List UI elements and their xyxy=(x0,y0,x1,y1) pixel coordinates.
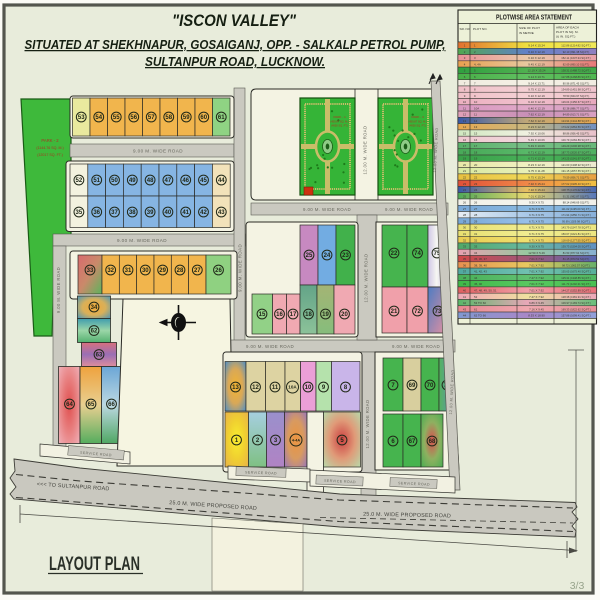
svg-text:65: 65 xyxy=(88,402,95,408)
svg-text:6.40 X 12.19: 6.40 X 12.19 xyxy=(528,106,545,110)
svg-text:8.23 X 12.19: 8.23 X 12.19 xyxy=(528,163,545,167)
svg-text:10: 10 xyxy=(463,100,467,104)
svg-text:7.62 X 12.19: 7.62 X 12.19 xyxy=(528,119,545,123)
svg-text:41: 41 xyxy=(182,210,189,216)
svg-text:66: 66 xyxy=(108,402,115,408)
svg-text:40: 40 xyxy=(463,289,467,293)
svg-text:6.71 X 9.75: 6.71 X 9.75 xyxy=(529,238,544,242)
svg-text:9.00 M. WIDE ROAD: 9.00 M. WIDE ROAD xyxy=(385,207,433,212)
svg-text:31: 31 xyxy=(125,268,132,274)
svg-text:21: 21 xyxy=(463,169,467,173)
svg-text:55: 55 xyxy=(113,115,120,121)
svg-text:44: 44 xyxy=(474,276,478,280)
svg-text:9.30 X 9.75: 9.30 X 9.75 xyxy=(529,201,544,205)
svg-text:20: 20 xyxy=(474,163,478,167)
svg-text:173.22 (1864.56 SQ.FT.): 173.22 (1864.56 SQ.FT.) xyxy=(561,125,591,129)
svg-text:6.10 X 12.19: 6.10 X 12.19 xyxy=(528,94,545,98)
svg-text:9.00 M. WIDE ROAD: 9.00 M. WIDE ROAD xyxy=(392,344,440,349)
svg-text:47: 47 xyxy=(165,178,172,184)
svg-text:(12017 SQ. FT.): (12017 SQ. FT.) xyxy=(37,153,63,157)
svg-text:35: 35 xyxy=(463,257,467,261)
svg-text:43: 43 xyxy=(218,210,225,216)
svg-text:18: 18 xyxy=(305,312,312,318)
svg-text:111.70 (1202.31 SQ.FT.): 111.70 (1202.31 SQ.FT.) xyxy=(561,282,590,286)
svg-text:25: 25 xyxy=(306,253,313,259)
svg-text:117.88 (1268.89 SQ.FT.): 117.88 (1268.89 SQ.FT.) xyxy=(561,75,590,79)
svg-text:88.86 (956.45 SQ.FT.): 88.86 (956.45 SQ.FT.) xyxy=(563,132,590,136)
svg-text:PARK - 2: PARK - 2 xyxy=(41,138,59,143)
svg-text:LAYOUT PLAN: LAYOUT PLAN xyxy=(49,553,140,575)
svg-text:32: 32 xyxy=(107,268,114,274)
svg-text:12: 12 xyxy=(463,113,467,117)
svg-text:30: 30 xyxy=(474,226,478,230)
svg-text:(4950 SQ. FT.): (4950 SQ. FT.) xyxy=(331,124,348,128)
svg-text:(& IN. SQ.FT.): (& IN. SQ.FT.) xyxy=(556,35,575,39)
svg-text:19: 19 xyxy=(322,312,329,318)
svg-text:9.75 X 11.28: 9.75 X 11.28 xyxy=(528,169,545,173)
svg-text:57: 57 xyxy=(148,115,155,121)
svg-text:SITUATED AT SHEKHNAPUR, GOSAIG: SITUATED AT SHEKHNAPUR, GOSAIGANJ, OPP. … xyxy=(25,38,446,52)
svg-text:52: 52 xyxy=(474,295,478,299)
svg-text:26: 26 xyxy=(215,268,222,274)
svg-text:67: 67 xyxy=(409,439,416,445)
svg-text:34: 34 xyxy=(91,305,98,311)
svg-text:40: 40 xyxy=(165,210,172,216)
svg-text:9.14 X 15.24: 9.14 X 15.24 xyxy=(528,44,545,48)
svg-text:7.16 X 9.45: 7.16 X 9.45 xyxy=(529,307,544,311)
svg-text:13: 13 xyxy=(232,385,239,391)
svg-text:9.14 X 13.71: 9.14 X 13.71 xyxy=(528,81,545,85)
svg-text:50: 50 xyxy=(111,178,118,184)
svg-text:17: 17 xyxy=(474,144,478,148)
svg-text:47, 48, 49, 50, 51: 47, 48, 49, 50, 51 xyxy=(474,289,497,293)
svg-text:12.50 X 5.49: 12.50 X 5.49 xyxy=(528,251,545,255)
svg-text:11: 11 xyxy=(463,106,466,110)
svg-text:19: 19 xyxy=(474,157,478,161)
svg-text:10: 10 xyxy=(305,385,312,391)
svg-text:155.65 (1675.40 SQ.FT.): 155.65 (1675.40 SQ.FT.) xyxy=(561,270,591,274)
svg-text:15: 15 xyxy=(463,132,467,136)
svg-text:41, 42, 43: 41, 42, 43 xyxy=(474,270,487,274)
svg-text:9.00 M. WIDE ROAD: 9.00 M. WIDE ROAD xyxy=(56,267,61,313)
svg-text:18: 18 xyxy=(463,150,467,154)
svg-text:80.96 (871.45 SQ.FT.): 80.96 (871.45 SQ.FT.) xyxy=(563,81,590,85)
svg-text:30: 30 xyxy=(463,226,467,230)
svg-text:69: 69 xyxy=(409,383,416,389)
svg-text:22: 22 xyxy=(474,175,478,179)
svg-text:37: 37 xyxy=(111,210,118,216)
svg-text:SULTANPUR ROAD, LUCKNOW.: SULTANPUR ROAD, LUCKNOW. xyxy=(145,55,325,69)
svg-text:13: 13 xyxy=(463,119,467,123)
svg-text:9.00 M. WIDE ROAD: 9.00 M. WIDE ROAD xyxy=(238,244,243,292)
svg-text:20: 20 xyxy=(341,312,348,318)
svg-text:44: 44 xyxy=(463,314,467,318)
svg-text:125.31 (1348.85 SQ.FT.): 125.31 (1348.85 SQ.FT.) xyxy=(561,276,591,280)
svg-text:34: 34 xyxy=(463,251,467,255)
svg-text:PARK - 3: PARK - 3 xyxy=(411,115,424,119)
svg-text:26: 26 xyxy=(474,201,478,205)
svg-text:21: 21 xyxy=(474,169,478,173)
svg-text:74: 74 xyxy=(414,251,421,257)
svg-text:169.33 (1822.62 SQ.FT.): 169.33 (1822.62 SQ.FT.) xyxy=(561,307,591,311)
svg-text:6.10 X 12.19: 6.10 X 12.19 xyxy=(528,50,545,54)
svg-text:6.71 X 9.75: 6.71 X 9.75 xyxy=(529,219,544,223)
svg-text:33: 33 xyxy=(474,245,478,249)
svg-text:12.00 M. WIDE ROAD: 12.00 M. WIDE ROAD xyxy=(364,254,369,303)
svg-text:29: 29 xyxy=(463,219,467,223)
svg-text:24: 24 xyxy=(463,188,467,192)
svg-text:23: 23 xyxy=(463,182,467,186)
svg-text:43: 43 xyxy=(463,307,467,311)
svg-text:6.71 X 12.19: 6.71 X 12.19 xyxy=(528,150,545,154)
svg-text:84.89 (913.71 SQ.FT.): 84.89 (913.71 SQ.FT.) xyxy=(563,113,590,117)
svg-text:27: 27 xyxy=(194,268,201,274)
svg-text:9.00 M. WIDE ROAD: 9.00 M. WIDE ROAD xyxy=(246,344,294,349)
svg-text:32: 32 xyxy=(474,238,478,242)
svg-text:7.92 X 10.06: 7.92 X 10.06 xyxy=(528,132,545,136)
svg-text:6.71 X 9.75: 6.71 X 9.75 xyxy=(529,232,544,236)
svg-text:16: 16 xyxy=(474,138,478,142)
svg-text:143.79 (1547.78 SQ.FT.): 143.79 (1547.78 SQ.FT.) xyxy=(561,226,591,230)
svg-text:35, 36, 37: 35, 36, 37 xyxy=(474,257,487,261)
svg-text:AREA OF EACH: AREA OF EACH xyxy=(556,26,579,30)
svg-text:48: 48 xyxy=(147,178,154,184)
svg-text:7.32 X 15.24: 7.32 X 15.24 xyxy=(528,182,545,186)
svg-text:12.19 X 15.24: 12.19 X 15.24 xyxy=(527,69,545,73)
svg-text:42: 42 xyxy=(463,301,467,305)
svg-text:IN METRE: IN METRE xyxy=(519,31,534,35)
svg-text:39: 39 xyxy=(463,282,467,286)
svg-text:152.11 (1637.34 SQ.FT.): 152.11 (1637.34 SQ.FT.) xyxy=(561,56,590,60)
svg-text:4, 4A: 4, 4A xyxy=(474,62,481,66)
svg-text:38, 39, 40: 38, 39, 40 xyxy=(474,263,487,267)
svg-text:23: 23 xyxy=(342,253,349,259)
svg-text:60: 60 xyxy=(200,115,207,121)
svg-text:98.72 (1062.57 SQ.FT.): 98.72 (1062.57 SQ.FT.) xyxy=(562,263,590,267)
svg-text:10: 10 xyxy=(474,100,478,104)
svg-text:6.10 X 12.19: 6.10 X 12.19 xyxy=(528,100,545,104)
svg-text:45: 45 xyxy=(200,178,207,184)
svg-text:46: 46 xyxy=(182,178,189,184)
svg-text:10A: 10A xyxy=(288,385,297,390)
svg-text:62: 62 xyxy=(91,329,98,335)
svg-text:34: 34 xyxy=(474,251,478,255)
svg-text:78.50 (844.97 SQ.FT.): 78.50 (844.97 SQ.FT.) xyxy=(563,94,590,98)
svg-text:23: 23 xyxy=(474,182,478,186)
svg-text:31: 31 xyxy=(463,232,467,236)
svg-text:36: 36 xyxy=(93,210,100,216)
svg-text:24: 24 xyxy=(324,253,331,259)
svg-text:9.00 M. WIDE ROAD: 9.00 M. WIDE ROAD xyxy=(133,149,183,154)
svg-text:70: 70 xyxy=(427,383,434,389)
svg-text:7.47 X 7.92: 7.47 X 7.92 xyxy=(529,276,544,280)
svg-text:20: 20 xyxy=(463,163,467,167)
svg-text:72: 72 xyxy=(414,309,421,315)
svg-text:108.75 (1170.62 SQ.FT.): 108.75 (1170.62 SQ.FT.) xyxy=(561,188,590,192)
svg-text:134.89 (1451.98 SQ.FT.): 134.89 (1451.98 SQ.FT.) xyxy=(561,88,591,92)
svg-text:149.29 (1606.98 SQ.FT.): 149.29 (1606.98 SQ.FT.) xyxy=(561,144,591,148)
svg-text:SIZE OF PLOT: SIZE OF PLOT xyxy=(519,26,540,30)
svg-text:64: 64 xyxy=(66,402,73,408)
svg-text:28: 28 xyxy=(474,213,478,217)
svg-text:19: 19 xyxy=(463,157,467,161)
svg-text:81.15 (873.52 SQ.FT.): 81.15 (873.52 SQ.FT.) xyxy=(563,257,590,261)
svg-text:44: 44 xyxy=(218,178,225,184)
svg-text:53 TO 60: 53 TO 60 xyxy=(474,301,486,305)
svg-text:7.01 X 7.92: 7.01 X 7.92 xyxy=(529,263,544,267)
svg-text:15: 15 xyxy=(474,132,478,136)
svg-text:7.47 X 7.92: 7.47 X 7.92 xyxy=(529,295,544,299)
svg-text:39: 39 xyxy=(147,210,154,216)
svg-text:73: 73 xyxy=(435,309,442,315)
svg-text:17: 17 xyxy=(463,144,467,148)
svg-text:95.69 (1029.98 SQ.FT.): 95.69 (1029.98 SQ.FT.) xyxy=(562,219,590,223)
svg-text:13: 13 xyxy=(474,125,478,129)
svg-text:88.14 (948.69 SQ.FT.): 88.14 (948.69 SQ.FT.) xyxy=(563,201,590,205)
svg-text:27: 27 xyxy=(474,207,478,211)
svg-text:9.45 X 12.19: 9.45 X 12.19 xyxy=(528,62,545,66)
svg-text:171.94 (1850.71 SQ.FT.): 171.94 (1850.71 SQ.FT.) xyxy=(561,213,591,217)
svg-text:30: 30 xyxy=(142,268,149,274)
svg-text:11: 11 xyxy=(474,113,477,117)
svg-text:6.10 X 12.19: 6.10 X 12.19 xyxy=(528,56,545,60)
svg-text:7.62 X 12.19: 7.62 X 12.19 xyxy=(528,113,545,117)
svg-text:128.38 (1381.91 SQ.FT.): 128.38 (1381.91 SQ.FT.) xyxy=(561,295,591,299)
svg-text:"ISCON VALLEY": "ISCON VALLEY" xyxy=(172,11,297,30)
svg-text:31: 31 xyxy=(474,232,478,236)
svg-text:9.75 X 15.24: 9.75 X 15.24 xyxy=(528,175,545,179)
svg-text:126.04 (1356.67 SQ.FT.): 126.04 (1356.67 SQ.FT.) xyxy=(561,100,591,104)
svg-text:22: 22 xyxy=(463,175,467,179)
svg-text:3/3: 3/3 xyxy=(570,580,585,592)
svg-text:29: 29 xyxy=(159,268,166,274)
svg-text:17: 17 xyxy=(290,312,297,318)
svg-text:6.71 X 12.19: 6.71 X 12.19 xyxy=(528,157,545,161)
svg-text:49: 49 xyxy=(129,178,136,184)
svg-text:10A: 10A xyxy=(474,106,479,110)
svg-text:(1144.76 SQ. M.): (1144.76 SQ. M.) xyxy=(36,146,63,150)
svg-text:121.60 (1308.92 SQ.FT.): 121.60 (1308.92 SQ.FT.) xyxy=(561,163,591,167)
svg-text:18: 18 xyxy=(474,150,478,154)
svg-text:61: 61 xyxy=(474,307,478,311)
svg-text:9.00 M. WIDE ROAD: 9.00 M. WIDE ROAD xyxy=(117,238,167,243)
svg-text:12: 12 xyxy=(474,119,478,123)
svg-text:7.01 X 15.24: 7.01 X 15.24 xyxy=(528,194,545,198)
svg-text:59: 59 xyxy=(183,115,190,121)
svg-text:9.30 X 9.75: 9.30 X 9.75 xyxy=(529,245,544,249)
svg-text:(4950 SQ. FT.): (4950 SQ. FT.) xyxy=(409,124,426,128)
svg-text:32: 32 xyxy=(463,238,467,242)
svg-text:100.79 (1084.89 SQ.FT.): 100.79 (1084.89 SQ.FT.) xyxy=(561,138,591,142)
svg-text:6.71 X 9.75: 6.71 X 9.75 xyxy=(529,213,544,217)
svg-text:7.32 X 15.24: 7.32 X 15.24 xyxy=(528,188,545,192)
svg-text:92.10 (991.38 SQ.FT.): 92.10 (991.38 SQ.FT.) xyxy=(563,50,590,54)
svg-text:25: 25 xyxy=(463,194,467,198)
svg-text:82.69 (890.10 SQ.FT.): 82.69 (890.10 SQ.FT.) xyxy=(563,62,590,66)
svg-text:187.73 (2020.67 SQ.FT.): 187.73 (2020.67 SQ.FT.) xyxy=(561,150,591,154)
svg-text:157.88 (1699.41 SQ.FT.): 157.88 (1699.41 SQ.FT.) xyxy=(561,314,591,318)
svg-text:45, 46: 45, 46 xyxy=(474,282,482,286)
svg-text:144.27 (1552.89 SQ.FT.): 144.27 (1552.89 SQ.FT.) xyxy=(561,289,591,293)
svg-text:138.31 (1488.72 SQ.FT.): 138.31 (1488.72 SQ.FT.) xyxy=(561,69,591,73)
svg-text:58: 58 xyxy=(165,115,172,121)
svg-text:53: 53 xyxy=(78,115,85,121)
svg-text:33: 33 xyxy=(87,268,94,274)
svg-text:139.73 (1504.05 SQ.FT.): 139.73 (1504.05 SQ.FT.) xyxy=(561,245,591,249)
svg-text:PARK - 1: PARK - 1 xyxy=(333,115,346,119)
svg-text:177.02 (1905.40 SQ.FT.): 177.02 (1905.40 SQ.FT.) xyxy=(561,182,591,186)
svg-text:PLOTWISE AREA STATEMENT: PLOTWISE AREA STATEMENT xyxy=(496,13,572,22)
svg-text:111.02 (1195.00 SQ.FT.): 111.02 (1195.00 SQ.FT.) xyxy=(562,207,591,211)
svg-text:38: 38 xyxy=(129,210,136,216)
svg-text:6.71 X 9.75: 6.71 X 9.75 xyxy=(529,207,544,211)
svg-text:51: 51 xyxy=(93,178,100,184)
svg-text:54: 54 xyxy=(95,115,102,121)
svg-text:143.25 (1541.97 SQ.FT.): 143.25 (1541.97 SQ.FT.) xyxy=(561,157,591,161)
svg-text:7.01 X 7.92: 7.01 X 7.92 xyxy=(529,270,544,274)
svg-text:191.15 (2057.55 SQ.FT.): 191.15 (2057.55 SQ.FT.) xyxy=(561,169,591,173)
svg-text:(459.87 SQ. M.): (459.87 SQ. M.) xyxy=(408,120,427,124)
svg-text:109.97 (1183.74 SQ.FT.): 109.97 (1183.74 SQ.FT.) xyxy=(561,301,590,305)
svg-text:7.01 X 7.92: 7.01 X 7.92 xyxy=(529,289,544,293)
svg-text:6.86 X 9.45: 6.86 X 9.45 xyxy=(529,301,544,305)
svg-text:9.75 X 12.19: 9.75 X 12.19 xyxy=(528,88,545,92)
svg-text:12.00 M. WIDE ROAD: 12.00 M. WIDE ROAD xyxy=(363,126,368,175)
svg-text:28: 28 xyxy=(177,268,184,274)
svg-text:SR. NO: SR. NO xyxy=(460,27,471,31)
svg-text:PLOT NO.: PLOT NO. xyxy=(473,27,488,31)
svg-text:7.01 X 7.92: 7.01 X 7.92 xyxy=(529,257,544,261)
svg-text:12.00 M. WIDE ROAD: 12.00 M. WIDE ROAD xyxy=(365,400,370,449)
svg-text:33: 33 xyxy=(463,245,467,249)
svg-text:124.94 (1344.88 SQ.FT.): 124.94 (1344.88 SQ.FT.) xyxy=(561,119,591,123)
svg-text:12: 12 xyxy=(252,385,259,391)
svg-text:22: 22 xyxy=(391,251,398,257)
svg-text:56: 56 xyxy=(130,115,137,121)
svg-text:25: 25 xyxy=(474,194,478,198)
svg-text:5.49 X 10.06: 5.49 X 10.06 xyxy=(528,138,545,142)
svg-text:16: 16 xyxy=(463,138,467,142)
svg-text:11: 11 xyxy=(272,385,279,391)
svg-text:24: 24 xyxy=(474,188,478,192)
svg-text:118.69 (1277.55 SQ.FT.): 118.69 (1277.55 SQ.FT.) xyxy=(561,238,590,242)
svg-text:5.49 X 10.06: 5.49 X 10.06 xyxy=(528,144,545,148)
svg-text:6.71 X 9.75: 6.71 X 9.75 xyxy=(529,226,544,230)
svg-text:79.59 (856.71 SQ.FT.): 79.59 (856.71 SQ.FT.) xyxy=(563,175,590,179)
svg-text:91.31 (982.87 SQ.FT.): 91.31 (982.87 SQ.FT.) xyxy=(563,194,590,198)
svg-text:62 TO 66: 62 TO 66 xyxy=(474,314,486,318)
svg-text:68: 68 xyxy=(429,439,436,445)
svg-text:(459.87 SQ. M.): (459.87 SQ. M.) xyxy=(330,120,349,124)
svg-text:9.00 M. WIDE ROAD: 9.00 M. WIDE ROAD xyxy=(303,207,351,212)
svg-text:15: 15 xyxy=(259,312,266,318)
svg-text:26: 26 xyxy=(463,201,467,205)
svg-text:29: 29 xyxy=(474,219,478,223)
svg-text:36: 36 xyxy=(463,263,467,267)
svg-text:112.86 (1214.82 SQ.FT.): 112.86 (1214.82 SQ.FT.) xyxy=(561,44,590,48)
svg-text:63: 63 xyxy=(96,353,103,359)
svg-text:28: 28 xyxy=(463,213,467,217)
svg-text:35: 35 xyxy=(76,210,83,216)
svg-text:38: 38 xyxy=(463,276,467,280)
svg-text:27: 27 xyxy=(463,207,467,211)
svg-text:4-4A: 4-4A xyxy=(292,438,300,442)
svg-text:82.38 (886.77 SQ.FT.): 82.38 (886.77 SQ.FT.) xyxy=(563,106,590,110)
svg-text:52: 52 xyxy=(76,178,83,184)
svg-text:16: 16 xyxy=(276,312,283,318)
svg-text:8.53 X 18.90: 8.53 X 18.90 xyxy=(528,314,545,318)
svg-text:41: 41 xyxy=(463,295,467,299)
svg-text:7.01 X 7.92: 7.01 X 7.92 xyxy=(529,282,544,286)
svg-text:9.14 X 13.71: 9.14 X 13.71 xyxy=(528,75,545,79)
svg-text:PLOT IN SQ. M.: PLOT IN SQ. M. xyxy=(556,30,579,34)
svg-text:42: 42 xyxy=(200,210,207,216)
svg-text:37: 37 xyxy=(463,270,467,274)
svg-text:14: 14 xyxy=(463,125,467,129)
svg-text:150.67 (1621.81 SQ.FT.): 150.67 (1621.81 SQ.FT.) xyxy=(561,232,591,236)
svg-text:8.23 X 12.19: 8.23 X 12.19 xyxy=(528,125,545,129)
svg-text:21: 21 xyxy=(391,309,398,315)
svg-text:61: 61 xyxy=(218,115,225,121)
svg-text:81.53 (877.64 SQ.FT.): 81.53 (877.64 SQ.FT.) xyxy=(563,251,590,255)
